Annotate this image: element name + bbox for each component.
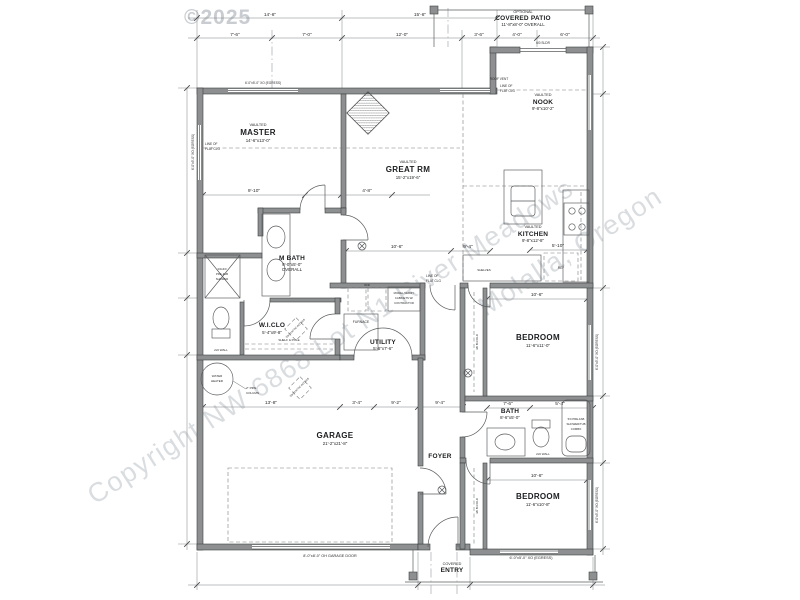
note-cab1: MODEL VERIFY <box>394 291 415 295</box>
master-name: MASTER <box>240 128 276 137</box>
room-label-patio: OPTIONAL COVERED PATIO 11'-8"x8'-0" OVER… <box>495 10 550 27</box>
covered-entry-outline <box>405 550 603 596</box>
dim-bath1: 7'-6" <box>503 401 513 407</box>
utility-dims: 5'-6"x7'-6" <box>373 346 393 351</box>
wiclo-dims: 5'-4"x9'-8" <box>262 330 282 335</box>
room-label-garage: GARAGE 21'-2"x21'-8" <box>317 431 354 446</box>
note-roof-vent: ROOF VENT <box>490 77 509 81</box>
mbath-name: M BATH <box>279 255 305 262</box>
note-flat-clg-master2: FLAT CLG <box>205 147 220 151</box>
light-fixture-icon <box>438 486 446 494</box>
master-dims: 14'-6"x13'-0" <box>246 138 271 143</box>
light-fixture-icon <box>358 242 366 250</box>
dim-garage1: 13'-8" <box>265 400 278 406</box>
note-bifold1: 4/0 BI-FOLD <box>475 334 479 350</box>
patio-post <box>430 6 438 14</box>
label-refrigerator: REF <box>558 266 564 270</box>
master-tag: VAULTED <box>250 123 267 127</box>
bath-vanity <box>487 428 525 456</box>
note-tub3: COMBO <box>571 427 582 431</box>
note-pipe-column1: 2" PIPE <box>246 386 256 390</box>
label-furnace: FURNACE <box>353 320 370 324</box>
bedroom2-name: BEDROOM <box>516 492 560 501</box>
note-garage-door: 8'-0"x8'-0" OH GARAGE DOOR <box>303 554 357 558</box>
bedroom1-name: BEDROOM <box>516 333 560 342</box>
note-flat-clg-master: LINE OF <box>205 142 217 146</box>
watermark-year: ©2025 <box>184 6 251 29</box>
patio-name: COVERED PATIO <box>495 15 550 22</box>
master-toilet <box>212 307 230 338</box>
patio-tag: OPTIONAL <box>513 10 532 14</box>
room-label-great: VAULTED GREAT RM 15'-2"x19'-6" <box>386 160 431 180</box>
dim-top1b: 15'-6" <box>414 12 427 18</box>
note-attic-closet: 30x30 ATTIC ACCESS <box>285 317 307 339</box>
room-label-bedroom2: BEDROOM 11'-6"x10'-8" <box>516 492 560 507</box>
label-water-heater2: HEATER <box>211 379 224 383</box>
note-pipe-column2: COLUMN <box>246 391 259 395</box>
note-egress-left: 6'-0"x5'-0" XO (EGRESS) <box>191 134 195 170</box>
note-flat-clg-nook2: FLAT CLG <box>500 89 515 93</box>
entry-post <box>409 572 417 580</box>
great-dims: 15'-2"x19'-6" <box>396 175 421 180</box>
dim-garage4: 9'-4" <box>435 400 445 406</box>
bedroom1-dims: 11'-6"x11'-0" <box>526 343 550 348</box>
note-cab2: CABINETS W/ <box>395 296 413 300</box>
room-label-master: VAULTED MASTER 14'-6"x13'-0" <box>240 123 276 143</box>
dim-top2c: 12'-0" <box>396 32 409 38</box>
dim-garage3: 9'-2" <box>391 400 401 406</box>
dim-top1a: 14'-6" <box>264 12 277 18</box>
nook-dims: 9'-8"x10'-2" <box>532 106 555 111</box>
bath-dims: 8'-6"x5'-0" <box>500 415 520 420</box>
garage-dims: 21'-2"x21'-8" <box>323 441 348 446</box>
dim-bedroom1: 10'-6" <box>531 292 544 298</box>
nook-name: NOOK <box>533 99 553 106</box>
dim-great2: 9'-4" <box>463 244 473 250</box>
note-flat-clg-nook: LINE OF <box>500 84 512 88</box>
room-label-wiclo: W.I.CLO 5'-4"x9'-8" <box>259 322 285 335</box>
entry-post <box>589 572 597 580</box>
note-tub2: SHOWER/TUB <box>567 422 586 426</box>
dim-top2e: 4'-0" <box>512 32 522 38</box>
room-label-utility: UTILITY 5'-6"x7'-6" <box>370 339 396 351</box>
utility-name: UTILITY <box>370 339 396 346</box>
dim-top2f: 6'-0" <box>560 32 570 38</box>
dim-kitchen1: 5'-10" <box>552 243 565 249</box>
note-egress-right2: 6'-0"x5'-0" XO (EGRESS) <box>595 487 599 523</box>
room-label-entry: COVERED ENTRY <box>441 562 464 574</box>
kitchen-dims: 9'-8"x12'-8" <box>522 238 545 243</box>
note-tub1: 5/0 PRE-FAB <box>568 417 585 421</box>
annotation-texts: 6'-0"x5'-0" XO (EGRESS) ROOF VENT 6/0 SL… <box>191 41 599 560</box>
patio-post <box>585 6 593 14</box>
floor-plan-drawing: ©2025 Copyright NW 6868 Lot N1 River Mea… <box>0 0 800 600</box>
dim-garage2: 3'-4" <box>352 400 362 406</box>
kitchen-name: KITCHEN <box>518 231 548 238</box>
floor-plan-page: ©2025 Copyright NW 6868 Lot N1 River Mea… <box>0 0 800 600</box>
kitchen-tag: VAULTED <box>525 225 542 229</box>
note-flat-clg-hall2: FLAT CLG <box>426 279 441 283</box>
wiclo-name: W.I.CLO <box>259 322 285 329</box>
note-bifold2: 4/0 BI-FOLD <box>475 498 479 514</box>
room-label-nook: VAULTED NOOK 9'-8"x10'-2" <box>532 93 555 111</box>
bath-name: BATH <box>501 408 519 415</box>
room-label-mbath: M BATH 9'-0"x5'-0" OVERALL <box>279 255 305 272</box>
room-label-bedroom1: BEDROOM 11'-6"x11'-0" <box>516 333 560 348</box>
note-shower2: PRE-FAB <box>216 272 228 276</box>
dim-great1: 10'-6" <box>391 244 404 250</box>
dim-top2b: 7'-0" <box>302 32 312 38</box>
fireplace <box>347 92 389 134</box>
bath-sink <box>495 434 515 450</box>
label-washer-dryer: W/D <box>364 283 371 287</box>
note-slider: 6/0 SLDR <box>536 41 551 45</box>
room-label-bath: BATH 8'-6"x5'-0" <box>500 408 520 420</box>
dim-bedroom2: 10'-6" <box>531 473 544 479</box>
dim-top2a: 7'-6" <box>230 32 240 38</box>
great-name: GREAT RM <box>386 165 431 174</box>
note-egress-top: 6'-0"x5'-0" XO (EGRESS) <box>245 81 281 85</box>
note-2x6-wall-bath: 2x6 WALL <box>536 452 550 456</box>
note-shower1: 3/0x4/0 <box>217 267 227 271</box>
nook-tag: VAULTED <box>535 93 552 97</box>
label-shelves: SHELVES <box>477 268 491 272</box>
dim-bath2: 5'-4" <box>555 401 565 407</box>
note-egress-right1: 6'-0"x5'-0" XO (EGRESS) <box>595 334 599 370</box>
label-water-heater1: WATER <box>212 374 223 378</box>
note-shower3: SHOWER <box>216 277 229 281</box>
note-flat-clg-hall: LINE OF <box>426 274 438 278</box>
note-cab3: CONTRACTOR <box>394 301 414 305</box>
mbath-dims2: OVERALL <box>282 267 303 272</box>
bedroom2-dims: 11'-6"x10'-8" <box>526 502 551 507</box>
note-2x6-wall-mbath: 2x6 WALL <box>214 348 228 352</box>
patio-dims: 11'-8"x8'-0" OVERALL <box>501 22 545 27</box>
dim-top2d: 3'-6" <box>474 32 484 38</box>
garage-name: GARAGE <box>317 431 354 440</box>
foyer-name: FOYER <box>428 453 451 460</box>
note-egress-bottom: 6'-0"x5'-0" XO (EGRESS) <box>510 556 554 560</box>
entry-tag: COVERED <box>443 562 462 566</box>
dim-master2: 4'-8" <box>362 188 372 194</box>
note-shelf-pole: SHELF & POLE <box>278 338 299 342</box>
bath-toilet <box>533 427 549 447</box>
great-tag: VAULTED <box>400 160 417 164</box>
entry-name: ENTRY <box>441 567 464 574</box>
dim-master1: 9'-10" <box>248 188 261 194</box>
